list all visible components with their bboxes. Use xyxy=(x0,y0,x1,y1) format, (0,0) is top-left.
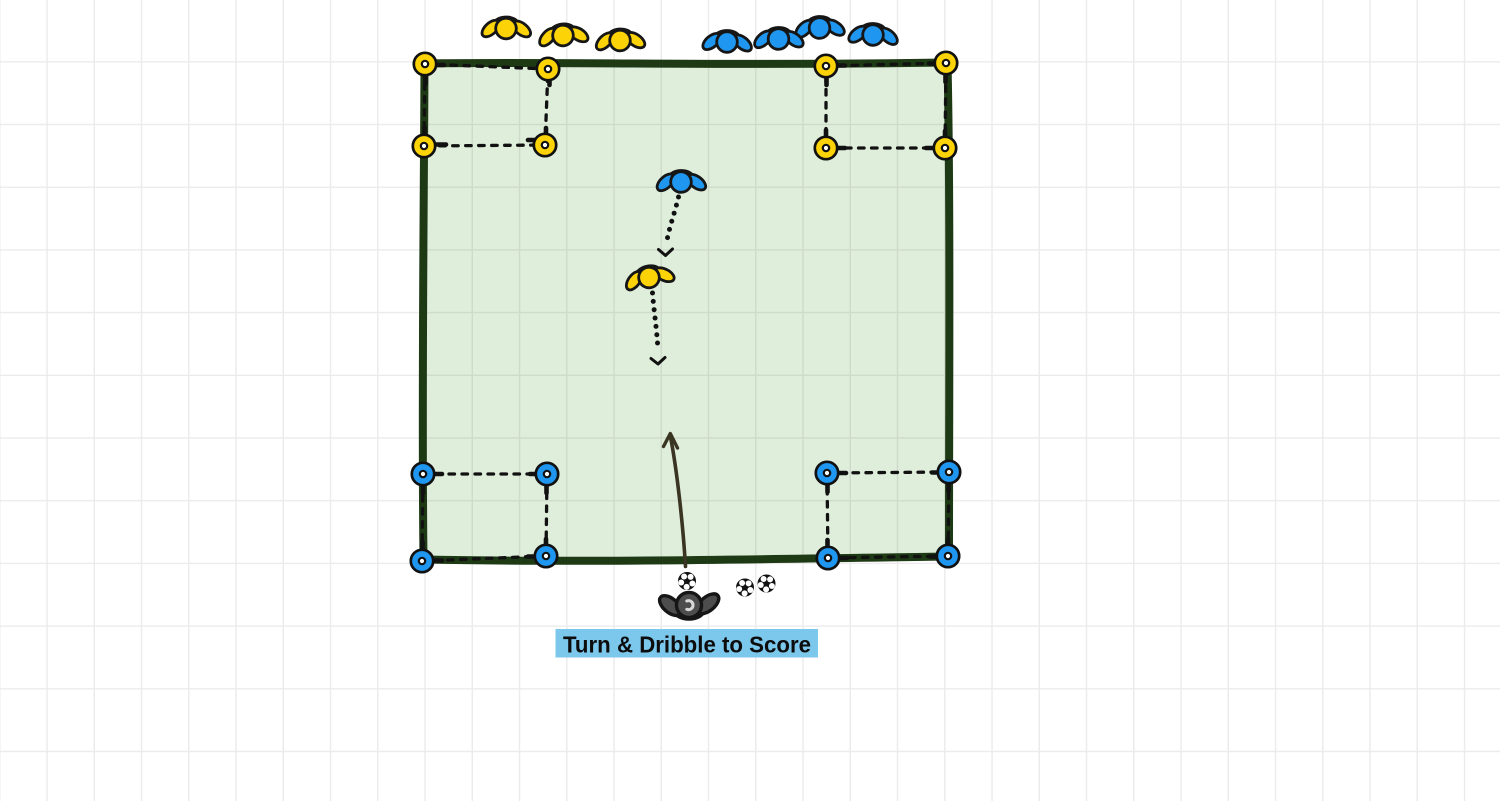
svg-text:Turn & Dribble to Score: Turn & Dribble to Score xyxy=(563,632,811,658)
